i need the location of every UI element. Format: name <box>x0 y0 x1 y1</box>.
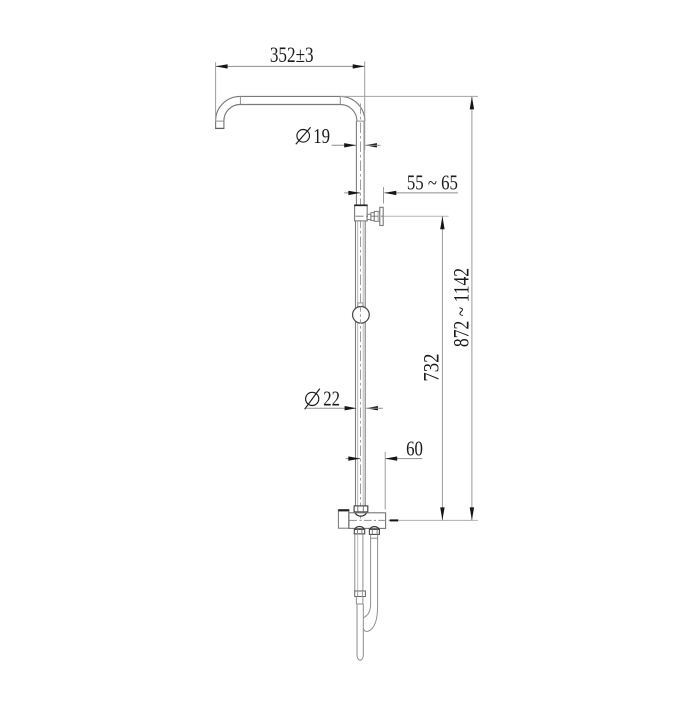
svg-text:60: 60 <box>406 438 423 461</box>
svg-text:22: 22 <box>323 388 340 411</box>
svg-text:19: 19 <box>313 125 330 148</box>
svg-text:55 ~ 65: 55 ~ 65 <box>407 172 458 195</box>
svg-text:872 ~ 1142: 872 ~ 1142 <box>450 268 474 347</box>
svg-text:732: 732 <box>420 354 444 382</box>
svg-text:352±3: 352±3 <box>270 43 314 68</box>
